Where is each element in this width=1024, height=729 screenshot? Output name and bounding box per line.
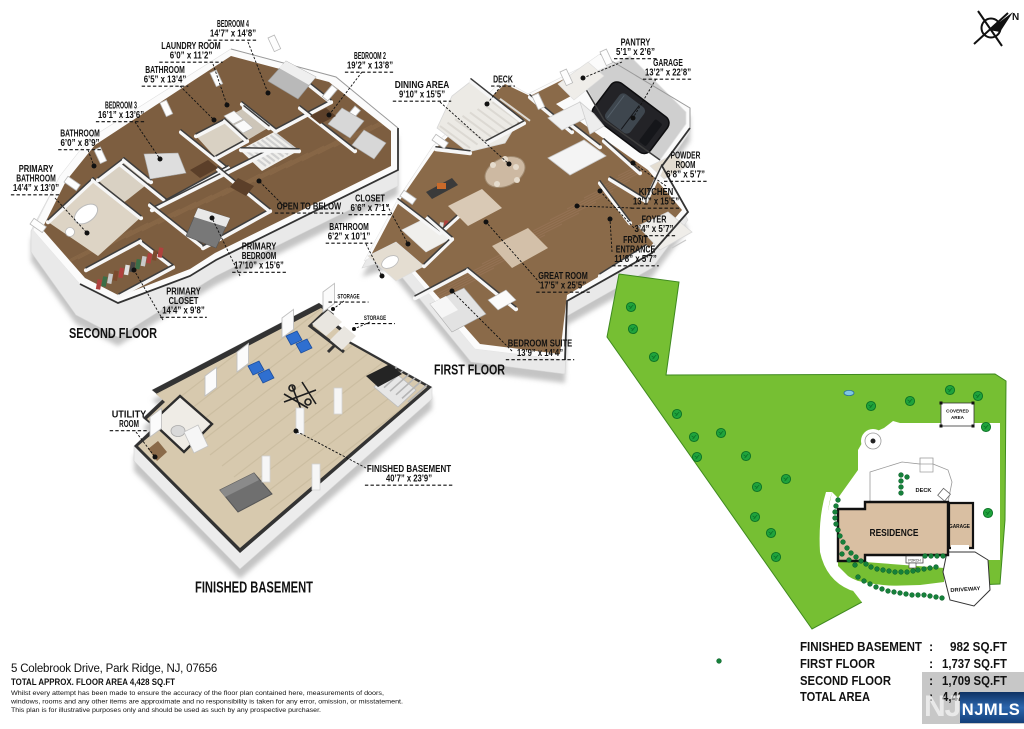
svg-text:16’1” x 13’6”: 16’1” x 13’6” — [98, 110, 144, 121]
svg-text::: : — [929, 674, 933, 688]
svg-text:OPEN TO BELOW: OPEN TO BELOW — [277, 202, 342, 213]
svg-text:982 SQ.FT: 982 SQ.FT — [950, 640, 1007, 654]
svg-text:3’4” x 5’7”: 3’4” x 5’7” — [635, 224, 674, 235]
svg-text:STORAGE: STORAGE — [337, 294, 360, 301]
svg-text:DECK: DECK — [916, 488, 932, 494]
svg-text:40’7” x 23’9”: 40’7” x 23’9” — [386, 474, 432, 485]
svg-text::: : — [929, 657, 933, 671]
svg-text:6’0” x 8’9”: 6’0” x 8’9” — [61, 138, 100, 149]
svg-text::: : — [929, 640, 933, 654]
svg-text:FIRST FLOOR: FIRST FLOOR — [434, 362, 505, 379]
svg-text:SECOND FLOOR: SECOND FLOOR — [69, 325, 157, 342]
svg-text:windows, rooms and any other i: windows, rooms and any other items are a… — [10, 699, 403, 706]
svg-text:14’4” x 13’0”: 14’4” x 13’0” — [13, 183, 59, 194]
svg-text:TOTAL APPROX. FLOOR AREA 4,428: TOTAL APPROX. FLOOR AREA 4,428 SQ.FT — [11, 677, 175, 688]
svg-text:5 Colebrook Drive, Park Ridge,: 5 Colebrook Drive, Park Ridge, NJ, 07656 — [11, 663, 217, 675]
svg-text:Whilst every attempt has been: Whilst every attempt has been made to en… — [11, 690, 384, 697]
svg-text:NJMLS: NJMLS — [962, 701, 1020, 719]
svg-text:FINISHED BASEMENT: FINISHED BASEMENT — [195, 580, 313, 597]
svg-text:6’8” x 5’7”: 6’8” x 5’7” — [666, 170, 705, 181]
svg-text:17’10” x 15’6”: 17’10” x 15’6” — [234, 261, 284, 272]
svg-text:19’2” x 13’8”: 19’2” x 13’8” — [347, 61, 393, 72]
svg-text:1,737 SQ.FT: 1,737 SQ.FT — [942, 657, 1007, 671]
svg-text:1,709 SQ.FT: 1,709 SQ.FT — [942, 674, 1007, 688]
svg-text:This plan is for illustrative: This plan is for illustrative purposes o… — [11, 707, 321, 714]
svg-text:13’9” x 14’4”: 13’9” x 14’4” — [517, 348, 563, 359]
svg-text:ROOM: ROOM — [119, 419, 139, 430]
svg-text:5’1” x 2’6”: 5’1” x 2’6” — [616, 47, 655, 58]
svg-text:6’6” x 7’1”: 6’6” x 7’1” — [351, 203, 390, 214]
svg-text:RESIDENCE: RESIDENCE — [870, 527, 919, 539]
svg-text:13’1” x 15’5”: 13’1” x 15’5” — [633, 197, 679, 208]
svg-text:FINISHED BASEMENT: FINISHED BASEMENT — [800, 640, 922, 654]
svg-text:13’2” x 22’8”: 13’2” x 22’8” — [645, 68, 691, 79]
svg-text:11’8” x 5’7”: 11’8” x 5’7” — [614, 254, 657, 265]
svg-text:6’5” x 13’4”: 6’5” x 13’4” — [144, 75, 187, 86]
svg-text:6’2” x 10’1”: 6’2” x 10’1” — [328, 232, 371, 243]
svg-text:14’7” x 14’8”: 14’7” x 14’8” — [210, 29, 256, 40]
svg-text:9’10” x 15’5”: 9’10” x 15’5” — [399, 90, 445, 101]
svg-text:14’4” x 9’8”: 14’4” x 9’8” — [162, 306, 205, 317]
svg-text:N: N — [1012, 12, 1019, 23]
svg-text:STORAGE: STORAGE — [364, 315, 387, 322]
svg-text:DECK: DECK — [493, 75, 513, 86]
svg-text:17’5” x 25’5”: 17’5” x 25’5” — [540, 281, 586, 292]
svg-text:COVERED: COVERED — [946, 409, 969, 414]
svg-text:AREA: AREA — [951, 415, 965, 420]
svg-text:SECOND FLOOR: SECOND FLOOR — [800, 674, 891, 688]
svg-text:PORCH: PORCH — [908, 559, 921, 563]
svg-text:6’0” x 11’2”: 6’0” x 11’2” — [170, 51, 213, 62]
svg-text:TOTAL AREA: TOTAL AREA — [800, 690, 870, 704]
svg-text:FIRST FLOOR: FIRST FLOOR — [800, 657, 875, 671]
svg-text:GARAGE: GARAGE — [949, 524, 970, 530]
